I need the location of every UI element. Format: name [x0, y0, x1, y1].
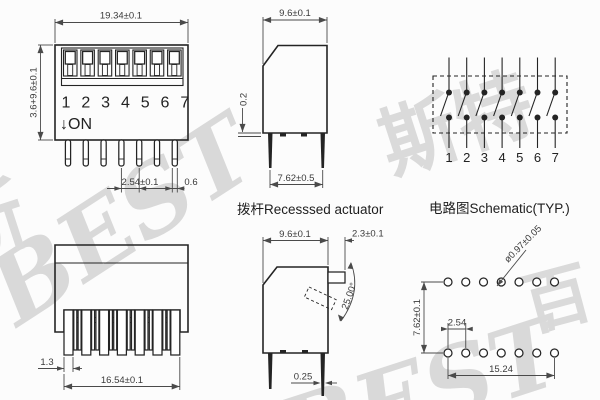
datasheet-drawing: BEST 斯特 斯 百 BEST 19.34±0.1 3.6+9.6±0.1 1…: [0, 0, 600, 400]
on-indicator: ↓ON: [60, 116, 92, 133]
hole-pitch-dim: 2.54: [448, 318, 467, 329]
hole-span-dim: 15.24: [489, 364, 513, 375]
schematic-caption: 电路图Schematic(TYP.): [429, 201, 570, 216]
side-pin-span-dim: 7.62±0.5: [278, 173, 315, 184]
schematic-position-6: 6: [534, 150, 541, 165]
side-view-caption: 拨杆Recesssed actuator: [237, 202, 384, 217]
side-width-dim: 9.6±0.1: [279, 8, 311, 19]
hole-row-span-dim: 7.62±0.1: [412, 299, 423, 336]
schematic-position-2: 2: [463, 150, 470, 165]
side-standoff-dim: 0.2: [239, 93, 250, 106]
front-position-5: 5: [141, 95, 150, 112]
front-position-7: 7: [180, 95, 189, 112]
hole-diameter-dim: ø0.97±0.05: [502, 223, 544, 265]
front-pitch-dim: 2.54±0.1: [122, 177, 159, 188]
front-position-1: 1: [62, 95, 71, 112]
schematic-position-3: 3: [481, 150, 488, 165]
front-width-dim: 19.34±0.1: [100, 11, 142, 22]
lever-actuator-dim: 2.3±0.1: [352, 229, 384, 240]
lever-angle-dim: 25.00°: [340, 281, 360, 311]
watermark-cn-right: 斯特: [369, 58, 545, 192]
front-position-3: 3: [101, 95, 110, 112]
lever-width-dim: 9.6±0.1: [279, 229, 311, 240]
front-position-6: 6: [161, 95, 170, 112]
schematic-position-1: 1: [445, 150, 452, 165]
schematic-position-5: 5: [516, 150, 523, 165]
bottom-pin-dim: 1.3: [40, 357, 53, 368]
lever-pin-thickness-dim: 0.25: [294, 372, 313, 383]
front-pin-width-dim: 0.6: [184, 177, 197, 188]
front-height-dim: 3.6+9.6±0.1: [29, 67, 40, 117]
bottom-span-dim: 16.54±0.1: [101, 375, 143, 386]
schematic-position-7: 7: [552, 150, 559, 165]
schematic-position-4: 4: [498, 150, 505, 165]
front-position-4: 4: [121, 95, 130, 112]
front-position-2: 2: [81, 95, 90, 112]
